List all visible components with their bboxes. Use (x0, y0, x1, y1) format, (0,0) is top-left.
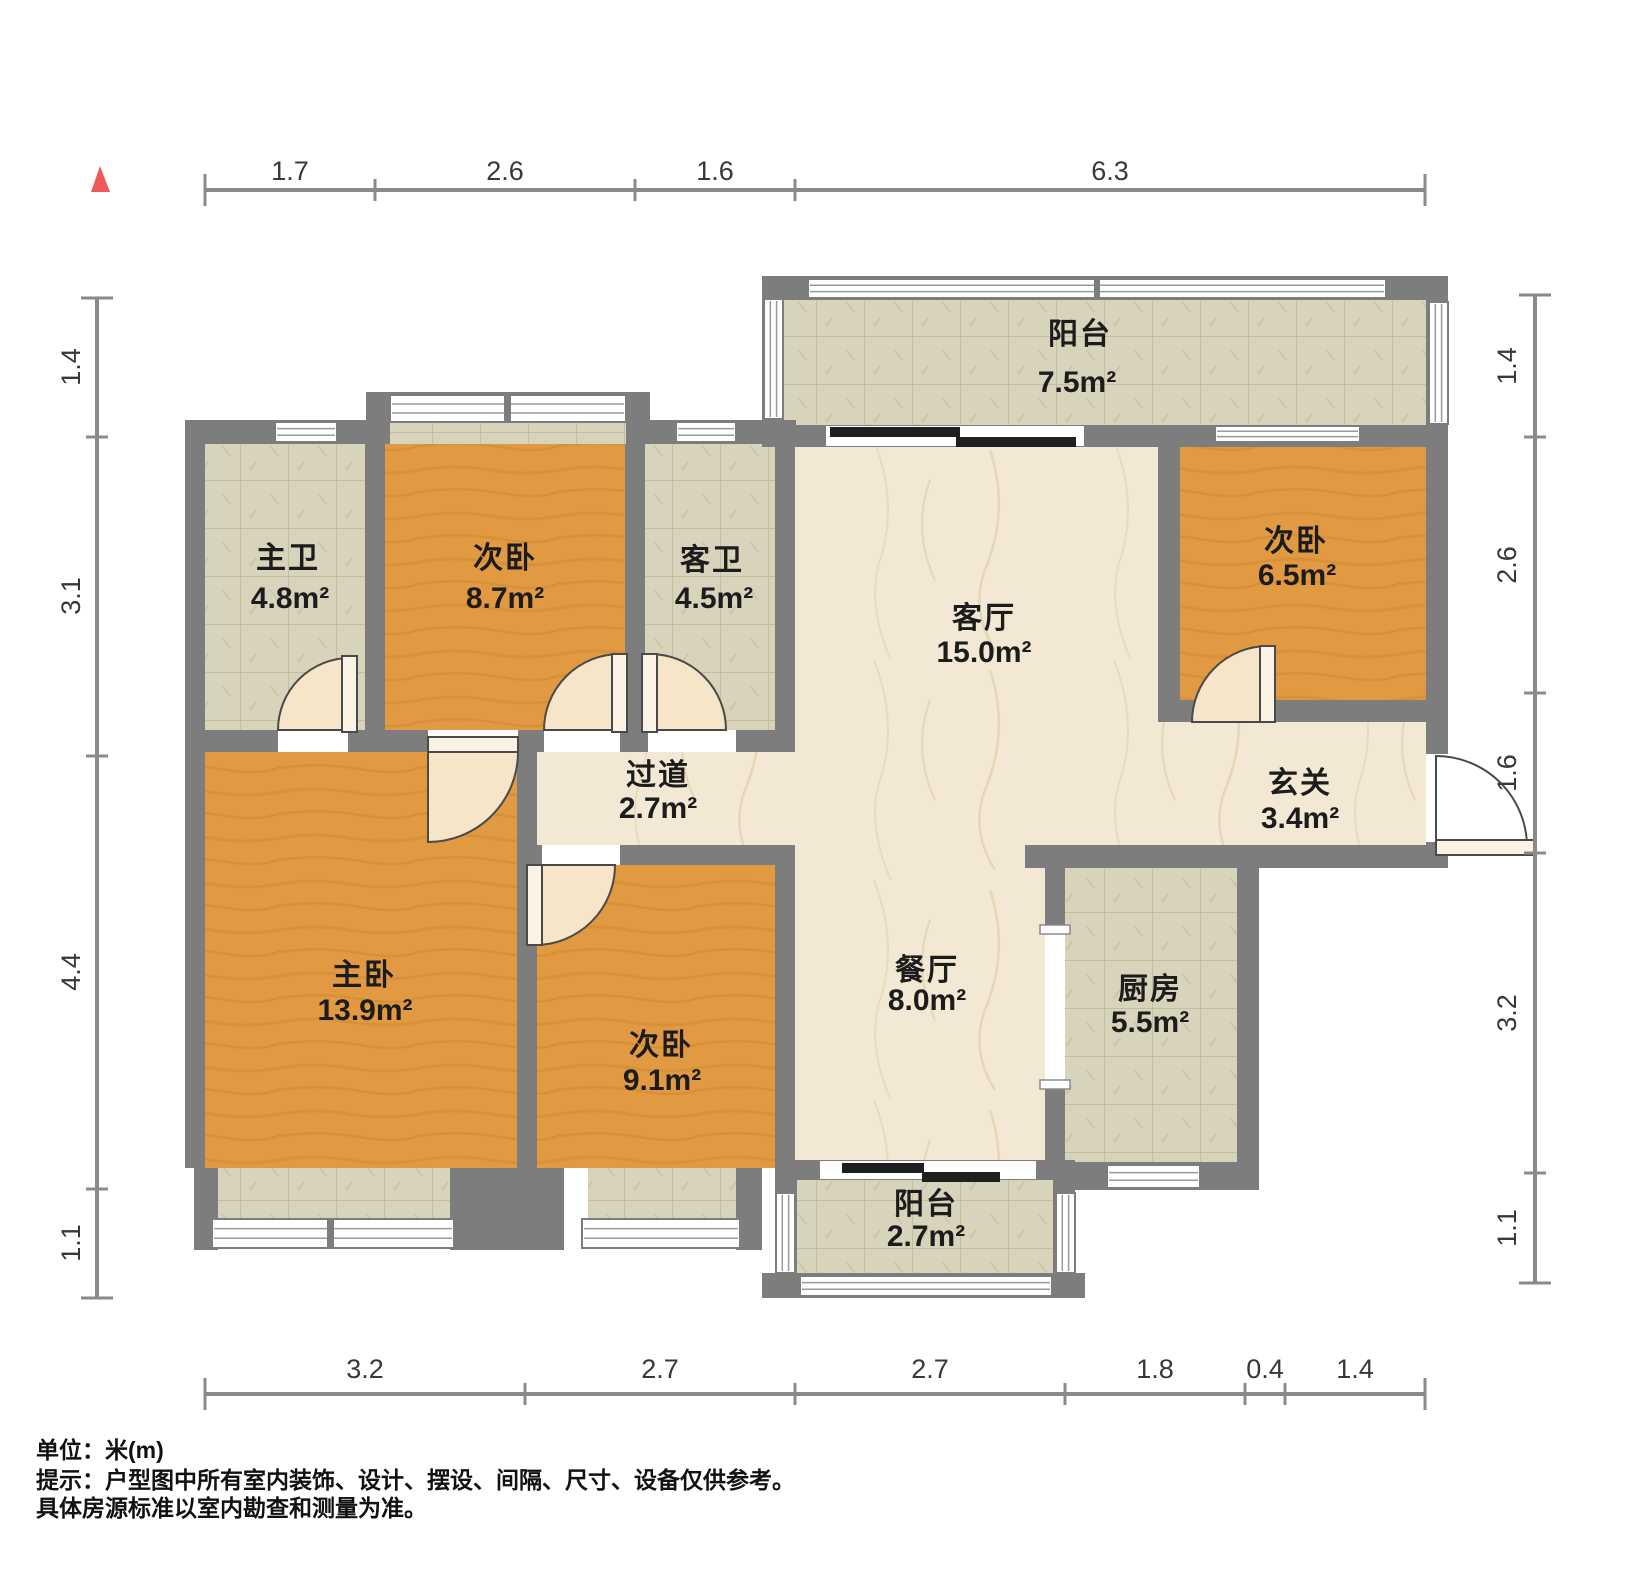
dim-bottom-3: 1.8 (1136, 1354, 1174, 1384)
dim-right-4: 1.1 (1492, 1209, 1522, 1247)
bed-right-window (1215, 426, 1360, 442)
living-room-floor (795, 444, 1158, 730)
dim-left-2: 4.4 (56, 953, 86, 991)
hallway-name: 过道 (626, 759, 690, 792)
floorplan-drawing: 阳台 7.5m² 主卫 4.8m² 次卧 8.7m² 客卫 4.5m² 客厅 1… (0, 0, 1629, 1576)
room-label-hallway: 过道 2.7m² (619, 759, 697, 825)
balcony-top-name: 阳台 (1048, 317, 1112, 351)
bed-mid-bay-window (582, 1219, 740, 1248)
room-label-bed-right: 次卧 6.5m² (1258, 525, 1336, 592)
balcony-bottom-window (800, 1276, 1052, 1296)
bed-master-area: 13.9m² (317, 994, 412, 1027)
kitchen-name: 厨房 (1118, 973, 1182, 1006)
dim-bottom-1: 2.7 (641, 1354, 679, 1384)
dim-line-top (205, 174, 1425, 206)
dim-bottom-0: 3.2 (346, 1354, 384, 1384)
footer-notes: 单位：米(m) 提示：户型图中所有室内装饰、设计、摆设、间隔、尺寸、设备仅供参考… (36, 1437, 795, 1521)
footer-disclaimer-2: 具体房源标准以室内勘查和测量为准。 (36, 1495, 427, 1521)
balcony-top-left-window (764, 299, 783, 419)
bed-mid-name: 次卧 (629, 1029, 693, 1062)
room-label-balcony-bottom: 阳台 2.7m² (887, 1187, 965, 1253)
dim-line-right (1519, 295, 1551, 1283)
bed-right-name: 次卧 (1264, 525, 1328, 558)
dim-left-0: 1.4 (56, 348, 86, 386)
dim-right-1: 2.6 (1492, 546, 1522, 584)
dim-top-3: 6.3 (1091, 156, 1129, 186)
dim-right-2: 1.6 (1492, 754, 1522, 792)
bath-guest-window (676, 422, 736, 442)
bath-guest-name: 客卫 (680, 543, 744, 577)
dining-name: 餐厅 (895, 954, 959, 987)
dim-left-3: 1.1 (56, 1224, 86, 1262)
dim-left-1: 3.1 (56, 577, 86, 615)
bed-top-area: 8.7m² (466, 582, 544, 615)
balcony-bottom-left-window (776, 1193, 795, 1273)
bed-top-name: 次卧 (473, 542, 537, 575)
bath-master-window (275, 422, 337, 442)
dim-top-2: 1.6 (696, 156, 734, 186)
bay-sill-master (218, 1168, 450, 1220)
floorplan-page: 阳台 7.5m² 主卫 4.8m² 次卧 8.7m² 客卫 4.5m² 客厅 1… (0, 0, 1629, 1576)
dim-right-0: 1.4 (1492, 347, 1522, 385)
living-name: 客厅 (952, 601, 1016, 635)
dim-top-0: 1.7 (271, 156, 309, 186)
kitchen-window (1107, 1165, 1200, 1188)
bed-right-area: 6.5m² (1258, 559, 1336, 592)
bath-guest-area: 4.5m² (675, 582, 753, 615)
bed-master-name: 主卧 (332, 959, 396, 992)
foyer-name: 玄关 (1268, 766, 1332, 800)
dim-bottom-5: 1.4 (1336, 1354, 1374, 1384)
balcony-top-window (808, 279, 1386, 298)
bed-mid-area: 9.1m² (623, 1064, 701, 1097)
balcony-top-right-window (1429, 302, 1448, 424)
dim-line-bottom (205, 1378, 1425, 1410)
bath-master-area: 4.8m² (251, 582, 329, 615)
room-label-dining: 餐厅 8.0m² (888, 954, 966, 1017)
north-arrow-icon (91, 166, 110, 192)
footer-unit-note: 单位：米(m) (36, 1437, 164, 1463)
dim-bottom-4: 0.4 (1246, 1354, 1284, 1384)
bay-sill-bed-mid (588, 1168, 736, 1220)
dim-bottom-2: 2.7 (911, 1354, 949, 1384)
dim-right-3: 3.2 (1492, 994, 1522, 1032)
room-label-kitchen: 厨房 5.5m² (1111, 973, 1189, 1039)
kitchen-area: 5.5m² (1111, 1006, 1189, 1039)
foyer-area: 3.4m² (1261, 802, 1339, 835)
dining-area: 8.0m² (888, 984, 966, 1017)
living-area: 15.0m² (936, 636, 1031, 669)
balcony-bottom-name: 阳台 (894, 1187, 958, 1221)
bed-top-bay-window (390, 395, 626, 422)
balcony-bottom-right-window (1056, 1193, 1075, 1273)
balcony-top-area: 7.5m² (1038, 366, 1116, 399)
bath-master-name: 主卫 (256, 542, 320, 575)
dim-top-1: 2.6 (486, 156, 524, 186)
footer-disclaimer-1: 提示：户型图中所有室内装饰、设计、摆设、间隔、尺寸、设备仅供参考。 (36, 1467, 795, 1493)
balcony-bottom-area: 2.7m² (887, 1220, 965, 1253)
bay-sill-top (390, 420, 626, 444)
hallway-area: 2.7m² (619, 792, 697, 825)
bed-master-bay-window (212, 1219, 454, 1248)
dim-line-left (81, 298, 113, 1298)
